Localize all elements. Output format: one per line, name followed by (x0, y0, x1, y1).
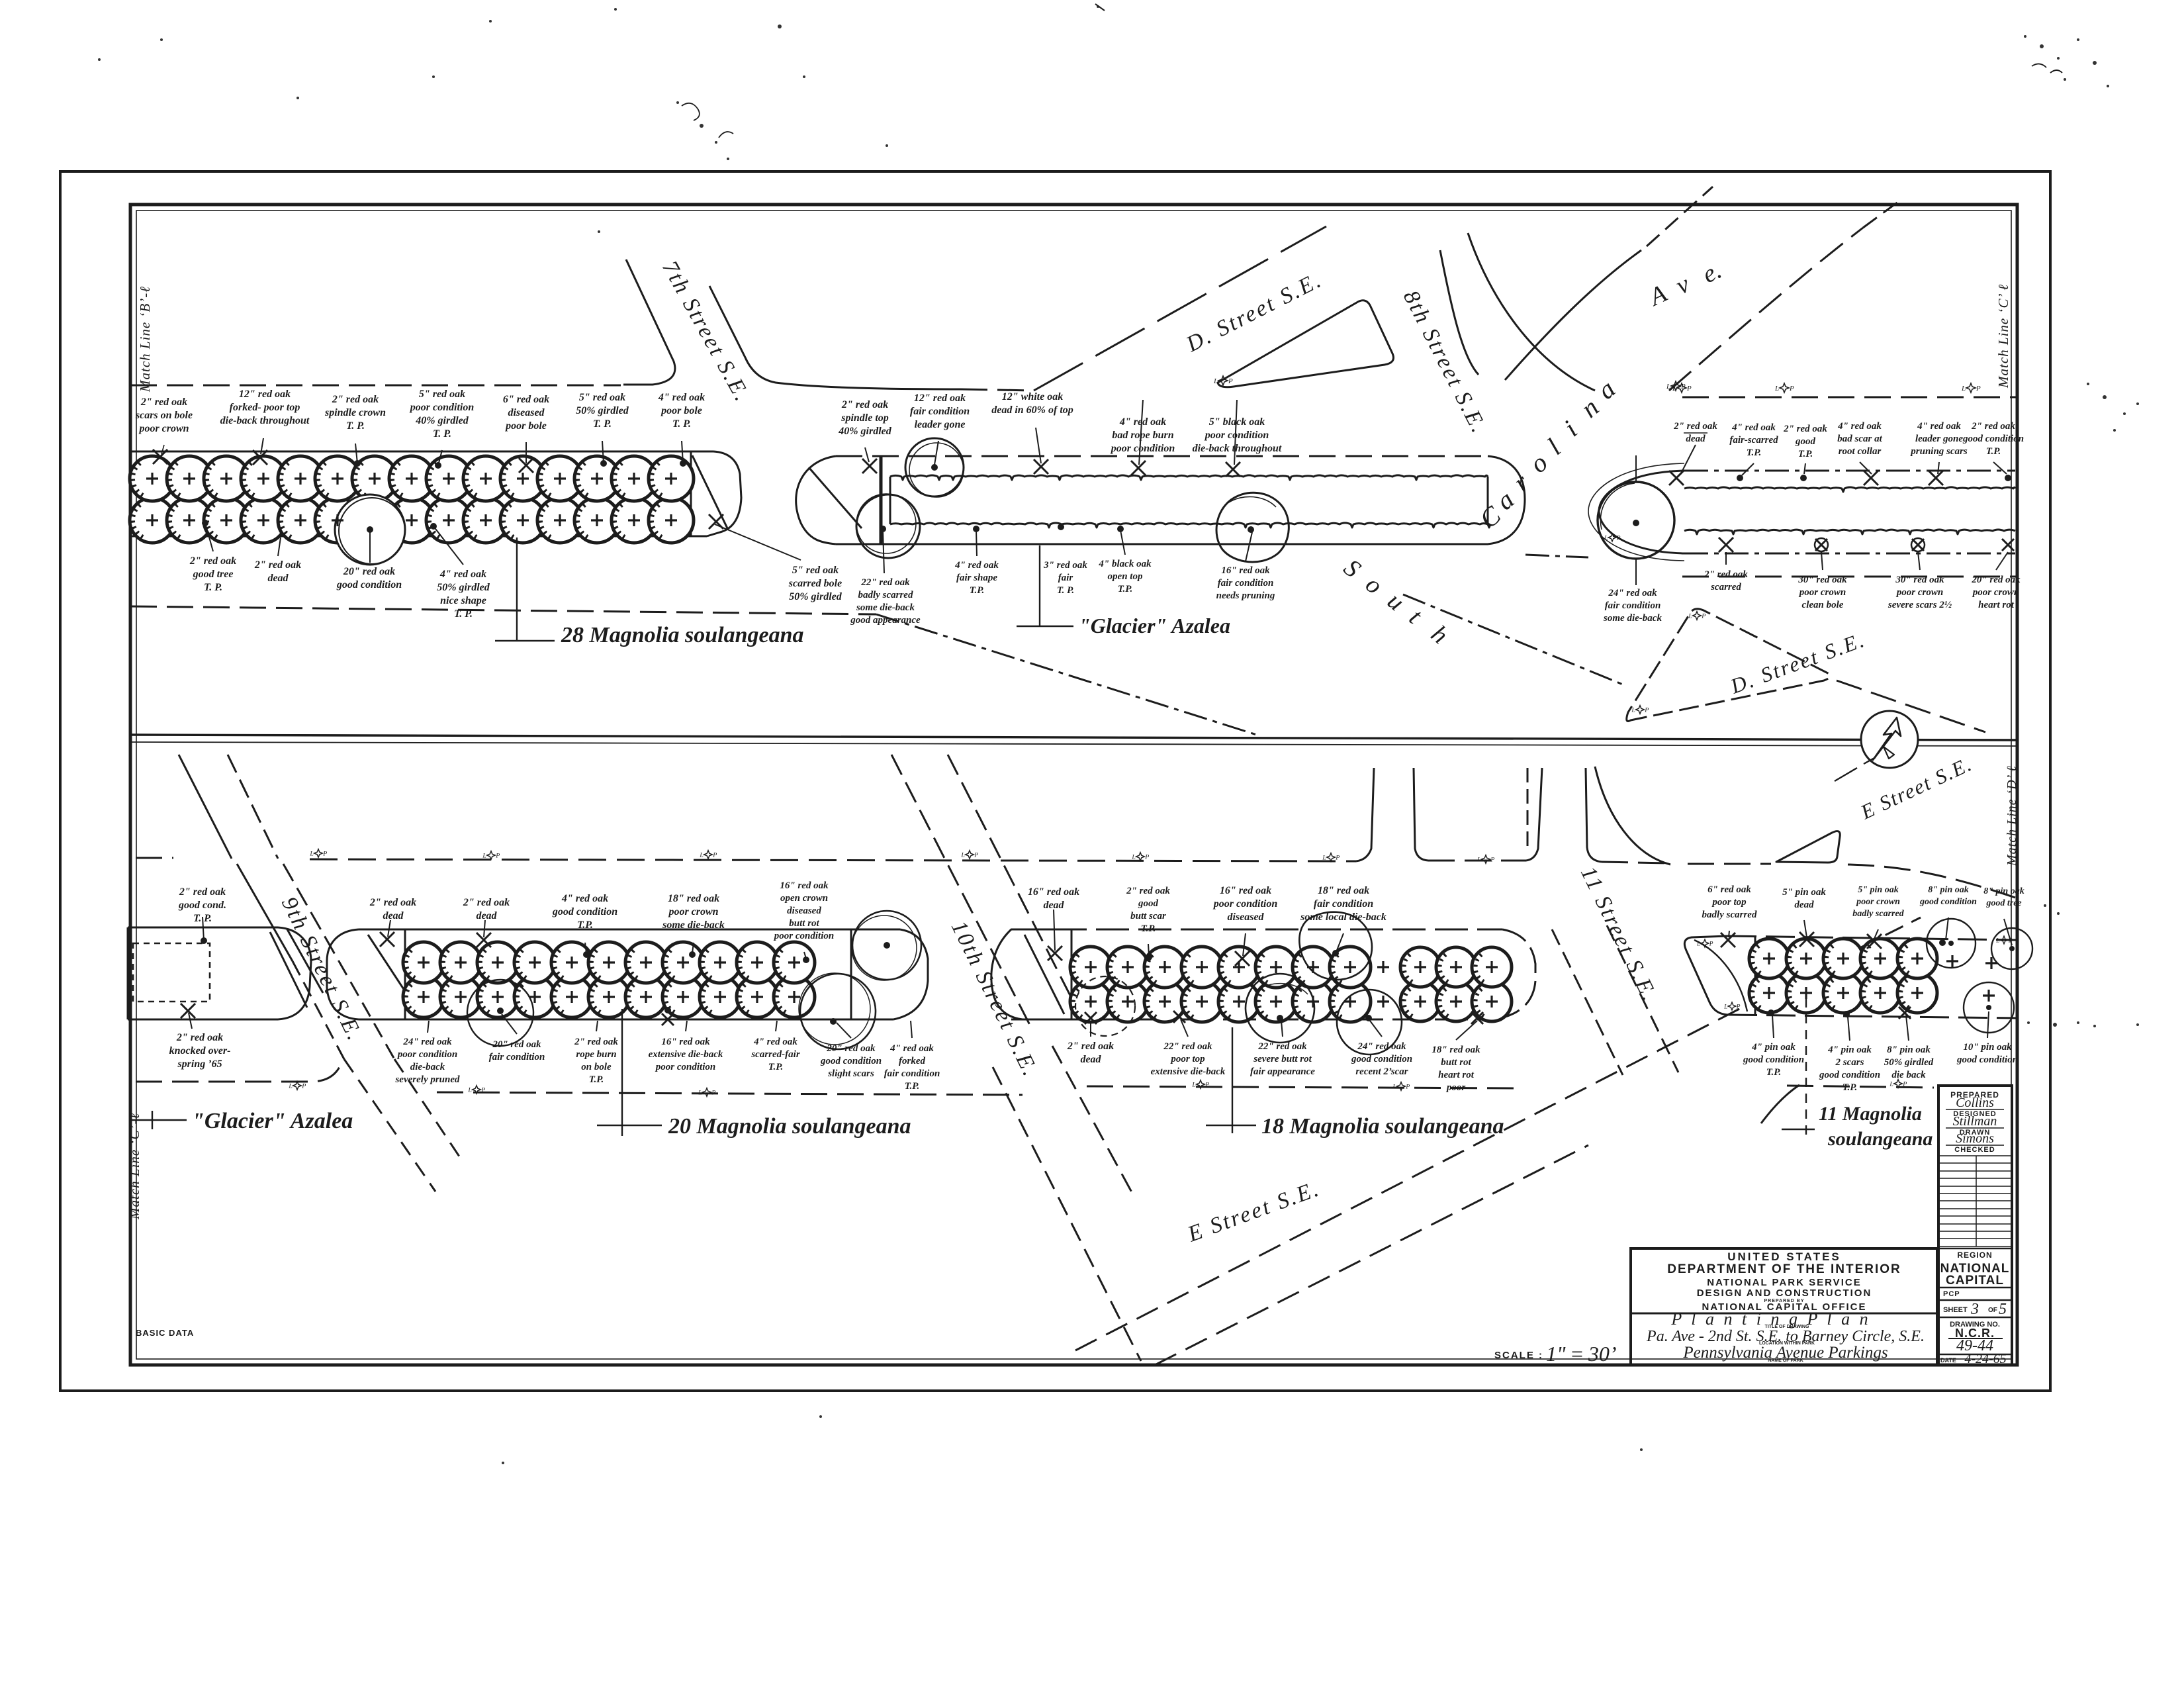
svg-text:good tree: good tree (1985, 898, 2021, 908)
svg-text:4" red oak: 4" red oak (658, 392, 705, 403)
svg-text:L: L (467, 1087, 472, 1094)
svg-text:UNITED STATES: UNITED STATES (1727, 1250, 1841, 1263)
svg-text:L: L (1723, 1004, 1727, 1010)
svg-text:fair shape: fair shape (956, 573, 997, 583)
svg-text:good condition: good condition (1819, 1070, 1880, 1080)
svg-text:P: P (1228, 377, 1233, 385)
svg-text:10" pin oak: 10" pin oak (1963, 1042, 2012, 1053)
svg-text:poor bole: poor bole (660, 405, 702, 416)
svg-text:T.P.: T.P. (1141, 923, 1156, 934)
svg-text:2" red oak: 2" red oak (1126, 886, 1170, 896)
svg-text:18" red oak: 18" red oak (668, 893, 719, 904)
svg-text:L: L (1961, 385, 1966, 393)
svg-text:Collins: Collins (1956, 1096, 1994, 1110)
svg-text:8" pin oak: 8" pin oak (1928, 885, 1968, 895)
svg-text:4" red oak: 4" red oak (1731, 422, 1776, 433)
svg-text:open top: open top (1108, 571, 1143, 582)
svg-text:11 Magnolia: 11 Magnolia (1819, 1103, 1922, 1125)
svg-text:L: L (1774, 385, 1779, 393)
svg-text:CHECKED: CHECKED (1954, 1146, 1995, 1154)
svg-text:knocked over-: knocked over- (169, 1045, 231, 1056)
svg-text:6" red oak: 6" red oak (503, 394, 549, 405)
svg-text:50% girdled: 50% girdled (1884, 1057, 1934, 1068)
svg-text:8" pin oak: 8" pin oak (1887, 1045, 1931, 1055)
svg-text:dead in 60% of top: dead in 60% of top (991, 404, 1073, 416)
svg-text:4" pin oak: 4" pin oak (1827, 1045, 1872, 1055)
svg-text:22" red oak: 22" red oak (860, 577, 910, 588)
svg-text:diseased: diseased (1227, 912, 1264, 923)
svg-text:P: P (480, 1087, 485, 1094)
svg-text:needs pruning: needs pruning (1216, 590, 1275, 601)
svg-text:P: P (495, 853, 500, 860)
svg-text:4" red oak: 4" red oak (439, 569, 486, 580)
svg-text:good: good (1795, 436, 1816, 447)
svg-text:fair condition: fair condition (1218, 578, 1274, 588)
svg-text:poor: poor (1445, 1082, 1466, 1093)
svg-text:2" red oak: 2" red oak (1783, 424, 1827, 434)
svg-text:L: L (482, 853, 486, 860)
svg-text:rope burn: rope burn (576, 1049, 616, 1060)
svg-text:4" black oak: 4" black oak (1098, 559, 1152, 569)
svg-text:"Glacier" Azalea: "Glacier" Azalea (192, 1109, 353, 1133)
svg-text:fair condition: fair condition (1314, 898, 1373, 910)
svg-text:P: P (974, 852, 978, 859)
svg-text:24" red oak: 24" red oak (402, 1037, 452, 1047)
svg-text:T.P.: T.P. (1747, 447, 1762, 458)
svg-text:NATIONAL PARK SERVICE: NATIONAL PARK SERVICE (1707, 1277, 1861, 1288)
svg-text:die-back throughout: die-back throughout (1193, 443, 1282, 454)
svg-text:poor condition: poor condition (1110, 443, 1175, 454)
svg-text:16" red oak: 16" red oak (1221, 565, 1270, 576)
svg-text:2" red oak: 2" red oak (841, 399, 888, 410)
svg-text:poor bole: poor bole (504, 420, 547, 432)
svg-text:T.P.: T.P. (1986, 446, 2001, 457)
svg-text:18 Magnolia soulangeana: 18 Magnolia soulangeana (1261, 1114, 1504, 1139)
svg-text:Match Line ‘D’ ℓ: Match Line ‘D’ ℓ (2005, 765, 2019, 867)
svg-text:some local die-back: some local die-back (1300, 912, 1387, 923)
svg-text:badly scarred: badly scarred (1702, 910, 1757, 920)
svg-text:T.P.: T.P. (970, 585, 985, 596)
svg-text:DEPARTMENT OF THE INTERIOR: DEPARTMENT OF THE INTERIOR (1667, 1262, 1901, 1276)
svg-text:T.P.: T.P. (1798, 449, 1813, 459)
svg-text:40% girdled: 40% girdled (415, 415, 469, 426)
svg-text:good condition: good condition (1743, 1055, 1804, 1065)
svg-text:L: L (1688, 613, 1692, 620)
svg-text:5: 5 (1999, 1301, 2007, 1318)
svg-text:T.P.: T.P. (905, 1081, 920, 1092)
svg-text:P: P (1616, 535, 1621, 541)
svg-text:20" red oak: 20" red oak (492, 1039, 541, 1050)
svg-text:16" red oak: 16" red oak (661, 1037, 710, 1047)
svg-text:fair-scarred: fair-scarred (1729, 435, 1778, 445)
svg-text:30" red oak: 30" red oak (1895, 575, 1944, 585)
svg-text:scars on bole: scars on bole (135, 410, 193, 421)
svg-text:fair condition: fair condition (910, 406, 970, 417)
svg-text:nice shape: nice shape (440, 595, 486, 606)
svg-text:20" red oak: 20" red oak (826, 1043, 876, 1054)
svg-text:dead: dead (1794, 900, 1814, 910)
svg-text:DATE: DATE (1940, 1357, 1956, 1364)
svg-text:good: good (1138, 898, 1159, 909)
svg-text:forked- poor top: forked- poor top (230, 402, 300, 413)
svg-text:CAPITAL: CAPITAL (1946, 1274, 2004, 1288)
svg-text:badly scarred: badly scarred (858, 590, 913, 600)
svg-text:L: L (1213, 377, 1218, 385)
svg-text:L: L (1191, 1082, 1196, 1089)
svg-text:T.P.: T.P. (1118, 584, 1133, 594)
svg-text:bad scar at: bad scar at (1837, 434, 1882, 444)
svg-text:P: P (1644, 707, 1649, 714)
svg-text:good condition: good condition (1919, 897, 1977, 907)
svg-text:16" red oak: 16" red oak (1220, 885, 1271, 896)
svg-text:P: P (1701, 613, 1706, 620)
svg-text:12" red oak: 12" red oak (239, 389, 291, 400)
svg-text:poor top: poor top (1711, 897, 1747, 908)
svg-text:poor condition: poor condition (773, 931, 834, 941)
svg-text:poor top: poor top (1169, 1054, 1205, 1064)
svg-text:butt rot: butt rot (789, 918, 819, 929)
svg-text:poor crown: poor crown (1972, 587, 2019, 598)
svg-text:P: P (1335, 855, 1340, 862)
svg-text:5" red oak: 5" red oak (419, 389, 465, 400)
svg-text:T. P.: T. P. (593, 418, 612, 430)
svg-text:diseased: diseased (787, 906, 821, 916)
svg-text:T. P.: T. P. (193, 913, 212, 924)
svg-text:P: P (322, 851, 327, 858)
svg-text:2" red oak: 2" red oak (332, 394, 379, 405)
svg-text:NAME OF PARK: NAME OF PARK (1768, 1358, 1803, 1363)
svg-text:good condition: good condition (820, 1056, 882, 1066)
svg-text:root collar: root collar (1839, 446, 1882, 457)
svg-text:poor crown: poor crown (138, 423, 189, 434)
svg-text:poor crown: poor crown (1856, 897, 1900, 907)
svg-text:poor condition: poor condition (396, 1049, 457, 1060)
svg-text:good appearance: good appearance (850, 615, 921, 626)
svg-text:P: P (1205, 1082, 1209, 1089)
svg-text:28 Magnolia soulangeana: 28 Magnolia soulangeana (561, 623, 804, 647)
svg-text:2" red oak: 2" red oak (1704, 569, 1748, 580)
svg-text:L: L (1631, 707, 1635, 714)
svg-text:Simons: Simons (1956, 1131, 1994, 1146)
svg-text:dead: dead (267, 573, 289, 584)
svg-text:2" red oak: 2" red oak (140, 397, 187, 408)
svg-text:PCP: PCP (1943, 1290, 1960, 1298)
svg-text:L: L (1666, 383, 1670, 391)
svg-text:T. P.: T. P. (433, 428, 451, 440)
svg-text:4" red oak: 4" red oak (889, 1043, 934, 1054)
svg-text:P: P (1789, 385, 1794, 393)
svg-text:6" red oak: 6" red oak (1707, 884, 1751, 895)
svg-text:on bole: on bole (581, 1062, 612, 1072)
svg-text:some die-back: some die-back (1603, 613, 1662, 624)
svg-text:2" red oak: 2" red oak (574, 1037, 618, 1047)
svg-text:4" red oak: 4" red oak (561, 893, 608, 904)
svg-text:dead: dead (1686, 434, 1706, 444)
svg-text:P: P (1736, 1004, 1741, 1010)
svg-text:16" red oak: 16" red oak (1028, 886, 1079, 898)
svg-text:some die-back: some die-back (856, 602, 915, 613)
svg-text:poor condition: poor condition (409, 402, 475, 413)
svg-text:BASIC DATA: BASIC DATA (136, 1328, 194, 1338)
svg-text:22" red oak: 22" red oak (1257, 1041, 1307, 1052)
svg-text:poor crown: poor crown (667, 906, 718, 917)
svg-text:scarred-fair: scarred-fair (751, 1049, 799, 1060)
svg-text:dead: dead (1080, 1054, 1101, 1065)
svg-text:good condition: good condition (1351, 1054, 1412, 1064)
svg-text:2" red oak: 2" red oak (176, 1032, 223, 1043)
svg-text:16" red oak: 16" red oak (780, 880, 829, 891)
svg-text:butt scar: butt scar (1130, 911, 1166, 921)
svg-text:bad rope burn: bad rope burn (1112, 430, 1173, 441)
svg-text:spindle crown: spindle crown (324, 407, 386, 418)
svg-text:L: L (1131, 854, 1136, 861)
svg-text:12" red oak: 12" red oak (914, 393, 966, 404)
svg-text:L: L (288, 1083, 293, 1090)
svg-text:2" red oak: 2" red oak (179, 886, 226, 898)
svg-text:spindle top: spindle top (841, 412, 889, 424)
svg-text:Match Line ‘B’-ℓ: Match Line ‘B’-ℓ (137, 286, 153, 393)
svg-text:butt rot: butt rot (1441, 1057, 1471, 1068)
svg-text:severely pruned: severely pruned (394, 1074, 460, 1085)
svg-text:Match Line ‘C’-ℓ: Match Line ‘C’-ℓ (126, 1113, 142, 1220)
svg-text:OF: OF (1988, 1307, 1997, 1314)
svg-text:L: L (1392, 1084, 1396, 1091)
svg-text:fair condition: fair condition (489, 1052, 545, 1062)
svg-text:"Glacier" Azalea: "Glacier" Azalea (1079, 614, 1230, 637)
svg-text:4" pin oak: 4" pin oak (1751, 1042, 1796, 1053)
svg-text:slight scars: slight scars (827, 1068, 874, 1079)
svg-text:5" pin oak: 5" pin oak (1858, 885, 1898, 895)
svg-text:P: P (1686, 385, 1692, 393)
svg-text:50% girdled: 50% girdled (437, 582, 490, 593)
svg-text:T.P.: T.P. (1843, 1082, 1858, 1093)
svg-text:L: L (1696, 941, 1700, 947)
svg-text:SHEET: SHEET (1943, 1306, 1968, 1314)
svg-text:forked: forked (899, 1056, 925, 1066)
svg-text:T. P.: T. P. (454, 608, 473, 620)
svg-text:poor condition: poor condition (1212, 898, 1278, 910)
svg-text:die-back: die-back (410, 1062, 445, 1072)
svg-text:L: L (1322, 855, 1326, 862)
svg-text:fair: fair (1058, 573, 1073, 583)
svg-text:clean bole: clean bole (1802, 600, 1844, 610)
svg-text:T. P.: T. P. (672, 418, 691, 430)
svg-text:5" pin oak: 5" pin oak (1782, 887, 1826, 898)
svg-text:T.P.: T.P. (768, 1062, 784, 1072)
svg-text:2" red oak: 2" red oak (1673, 421, 1717, 432)
svg-text:24" red oak: 24" red oak (1608, 588, 1657, 598)
svg-text:Stillman: Stillman (1953, 1114, 1997, 1129)
svg-text:40% girdled: 40% girdled (838, 426, 892, 437)
svg-text:P: P (1902, 1081, 1907, 1088)
svg-text:REGION: REGION (1957, 1250, 1992, 1260)
svg-text:dead: dead (1043, 900, 1064, 911)
svg-text:P: P (711, 1090, 715, 1097)
svg-text:4" red oak: 4" red oak (753, 1037, 797, 1047)
svg-text:4" red oak: 4" red oak (954, 560, 999, 571)
svg-text:P: P (1709, 941, 1713, 947)
svg-text:good tree: good tree (193, 569, 234, 580)
svg-text:2 scars: 2 scars (1835, 1057, 1864, 1068)
svg-text:severe scars 2½: severe scars 2½ (1888, 600, 1952, 610)
svg-text:T. P.: T. P. (204, 582, 222, 593)
svg-text:20 Magnolia soulangeana: 20 Magnolia soulangeana (668, 1114, 911, 1139)
svg-text:good condition: good condition (336, 579, 402, 590)
svg-text:L: L (309, 851, 314, 858)
svg-text:P: P (1680, 383, 1686, 391)
svg-text:heart rot: heart rot (1978, 600, 2015, 610)
svg-text:P: P (1144, 854, 1149, 861)
svg-text:poor crown: poor crown (1798, 587, 1846, 598)
svg-text:2" red oak: 2" red oak (1971, 421, 2015, 432)
svg-text:Match Line ‘C’ ℓ: Match Line ‘C’ ℓ (1995, 284, 2011, 389)
svg-text:leader gone: leader gone (1915, 434, 1963, 444)
svg-text:12" white oak: 12" white oak (1002, 391, 1063, 402)
svg-text:4" red oak: 4" red oak (1917, 421, 1961, 432)
svg-text:good cond.: good cond. (178, 900, 226, 911)
svg-text:good condition: good condition (552, 906, 617, 917)
svg-text:heart rot: heart rot (1438, 1070, 1475, 1080)
svg-text:2" red oak: 2" red oak (463, 897, 510, 908)
svg-text:L: L (699, 852, 704, 859)
svg-text:die back: die back (1891, 1070, 1926, 1080)
svg-text:5" red oak: 5" red oak (579, 392, 625, 403)
svg-text:3" red oak: 3" red oak (1043, 560, 1087, 571)
svg-text:fair appearance: fair appearance (1250, 1066, 1315, 1077)
svg-text:4" red oak: 4" red oak (1837, 421, 1882, 432)
svg-text:4" red oak: 4" red oak (1119, 416, 1166, 428)
svg-text:P: P (1405, 1084, 1410, 1091)
svg-text:pruning scars: pruning scars (1909, 446, 1968, 457)
svg-text:2" red oak: 2" red oak (189, 555, 236, 567)
svg-text:2" red oak: 2" red oak (369, 897, 416, 908)
svg-text:T.P.: T.P. (577, 919, 593, 931)
svg-text:T. P.: T. P. (346, 420, 365, 432)
svg-text:22" red oak: 22" red oak (1163, 1041, 1212, 1052)
svg-text:L: L (698, 1090, 702, 1097)
svg-text:24" red oak: 24" red oak (1357, 1041, 1406, 1052)
svg-text:poor condition: poor condition (655, 1062, 715, 1072)
svg-text:leader gone: leader gone (915, 419, 966, 430)
svg-text:recent 2’scar: recent 2’scar (1355, 1066, 1408, 1077)
svg-text:spring ’65: spring ’65 (177, 1058, 222, 1070)
svg-text:open crown: open crown (780, 893, 828, 904)
svg-text:8" pin oak: 8" pin oak (1983, 886, 2024, 896)
svg-text:fair condition: fair condition (884, 1068, 940, 1079)
svg-text:P: P (301, 1083, 306, 1090)
svg-text:L: L (1995, 937, 1999, 944)
svg-text:die-back throughout: die-back throughout (220, 415, 310, 426)
svg-text:18" red oak: 18" red oak (1432, 1045, 1480, 1055)
svg-text:soulangeana: soulangeana (1827, 1128, 1933, 1150)
svg-text:50% girdled: 50% girdled (576, 405, 629, 416)
svg-text:50% girdled: 50% girdled (789, 591, 842, 602)
svg-text:L: L (1889, 1081, 1893, 1088)
svg-text:L: L (960, 852, 965, 859)
svg-text:P: P (1976, 385, 1981, 393)
svg-text:T.P.: T.P. (589, 1074, 604, 1085)
svg-text:3: 3 (1970, 1301, 1979, 1318)
svg-text:fair condition: fair condition (1605, 600, 1661, 611)
svg-text:diseased: diseased (508, 407, 545, 418)
svg-text:extensive die-back: extensive die-back (1151, 1066, 1226, 1077)
svg-text:some die-back: some die-back (662, 919, 725, 931)
svg-text:scarred bole: scarred bole (788, 578, 842, 589)
svg-text:1" = 30’: 1" = 30’ (1546, 1342, 1617, 1366)
svg-text:20" red oak: 20" red oak (343, 566, 395, 577)
svg-text:5" red oak: 5" red oak (792, 565, 839, 576)
svg-text:dead: dead (383, 910, 404, 921)
svg-text:20" red oak: 20" red oak (1971, 575, 2021, 585)
svg-text:SCALE :: SCALE : (1494, 1350, 1543, 1361)
svg-text:L: L (1604, 535, 1608, 541)
svg-text:4-24-65: 4-24-65 (1964, 1352, 2006, 1366)
svg-text:extensive die-back: extensive die-back (649, 1049, 723, 1060)
svg-text:2" red oak: 2" red oak (1067, 1041, 1114, 1052)
svg-text:30" red oak: 30" red oak (1797, 575, 1847, 585)
svg-text:5" black oak: 5" black oak (1209, 416, 1265, 428)
svg-text:severe butt rot: severe butt rot (1253, 1054, 1312, 1064)
svg-text:good condition: good condition (1962, 434, 2024, 444)
svg-text:dead: dead (476, 910, 497, 921)
svg-text:scarred: scarred (1710, 582, 1741, 592)
svg-text:T. P.: T. P. (1057, 585, 1074, 596)
svg-text:18" red oak: 18" red oak (1318, 885, 1369, 896)
svg-text:badly scarred: badly scarred (1852, 909, 1904, 919)
svg-text:good condition: good condition (1956, 1055, 2018, 1065)
svg-text:2" red oak: 2" red oak (254, 559, 301, 571)
svg-text:P: P (712, 852, 717, 859)
svg-text:poor crown: poor crown (1895, 587, 1943, 598)
svg-text:DESIGN AND CONSTRUCTION: DESIGN AND CONSTRUCTION (1697, 1288, 1872, 1299)
svg-text:T.P.: T.P. (1766, 1067, 1782, 1078)
